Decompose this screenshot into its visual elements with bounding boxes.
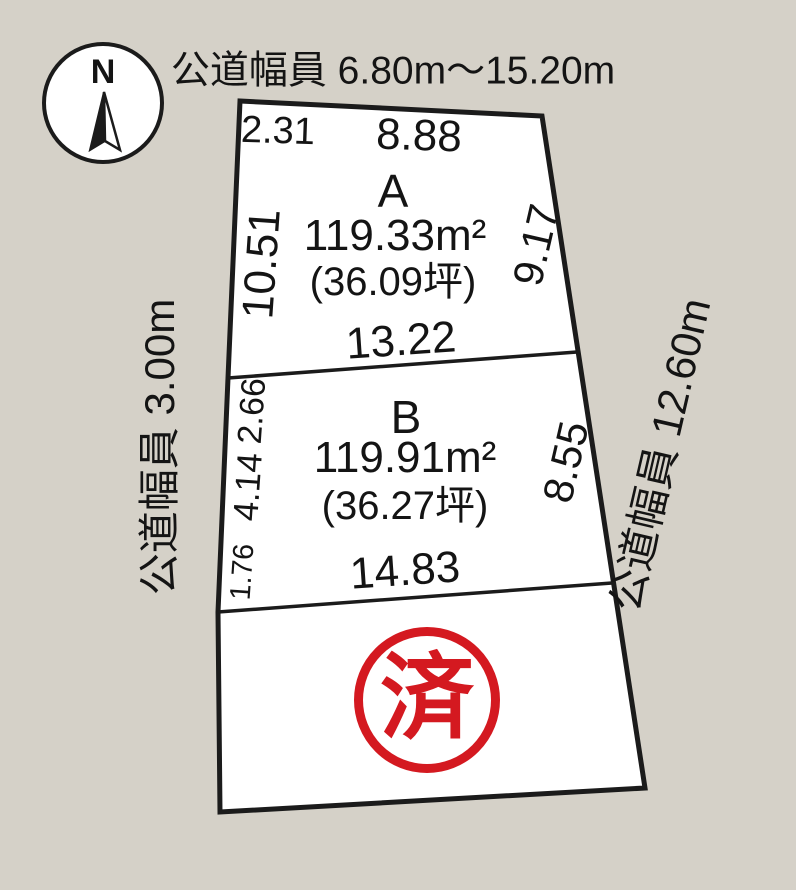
- sold-stamp-text: 済: [380, 651, 474, 745]
- compass-north-label: N: [91, 55, 116, 89]
- lot-a-dim-left: 10.51: [236, 208, 288, 321]
- lot-a-area-m2: 119.33m²: [304, 214, 487, 258]
- lot-b-area-tsubo: (36.27坪): [322, 486, 489, 526]
- land-plot-diagram: 公道幅員 6.80m～15.20m N 公道幅員 3.00m 公道幅員 12.6…: [0, 0, 796, 890]
- lot-a-dim-bottom: 13.22: [345, 315, 458, 367]
- lot-b-area-m2: 119.91m²: [314, 436, 497, 480]
- lot-b-dim-left-lower: 1.76: [227, 543, 260, 601]
- lot-a-dim-top-left: 2.31: [240, 111, 315, 152]
- sold-stamp: 済: [354, 627, 500, 773]
- lot-a-dim-top: 8.88: [375, 113, 462, 160]
- lot-a-name: A: [378, 168, 409, 214]
- lot-b-dim-left-upper: 2.66: [233, 377, 272, 445]
- road-width-left-label: 公道幅員 3.00m: [139, 299, 181, 595]
- lot-b-dim-left-middle: 4.14: [228, 452, 268, 522]
- lot-b-dim-bottom: 14.83: [349, 545, 462, 597]
- road-width-top-label: 公道幅員 6.80m～15.20m: [171, 52, 615, 91]
- lot-a-area-tsubo: (36.09坪): [310, 262, 477, 302]
